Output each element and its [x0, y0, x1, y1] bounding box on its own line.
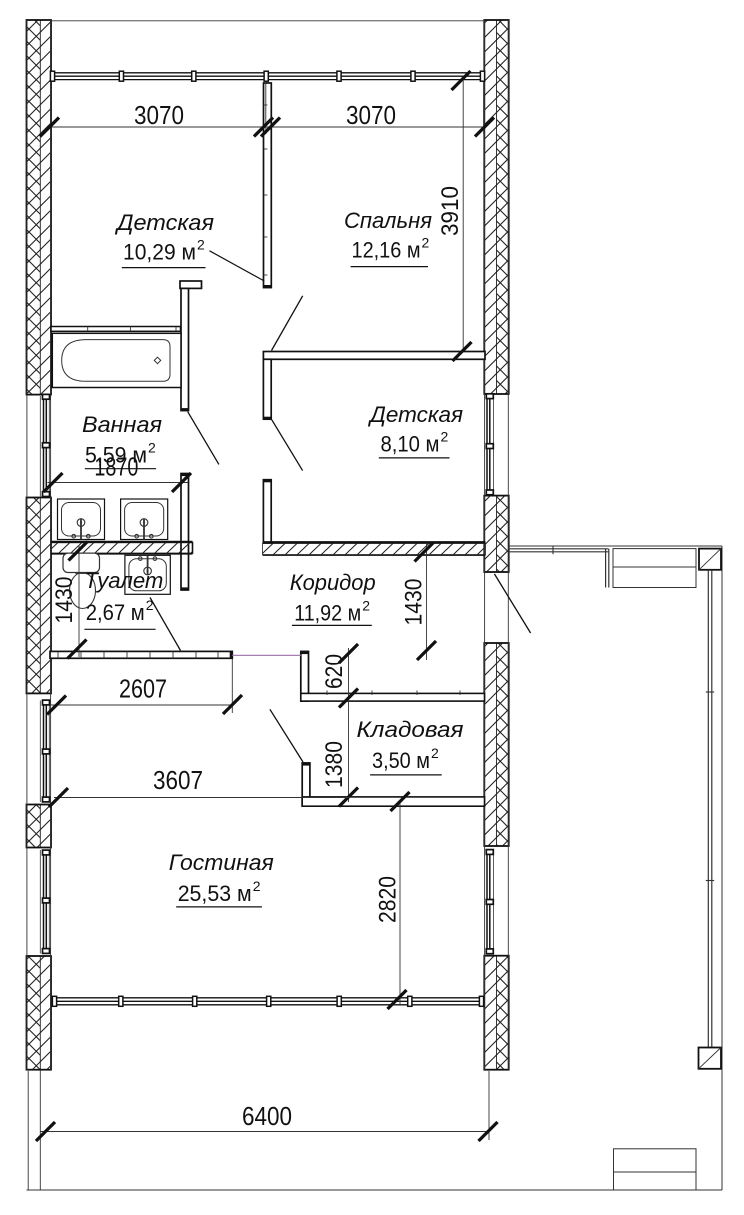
- svg-text:Ванная: Ванная: [82, 412, 162, 437]
- svg-text:1430: 1430: [51, 577, 78, 624]
- svg-text:Гостиная: Гостиная: [169, 850, 274, 875]
- svg-text:2: 2: [148, 440, 156, 456]
- svg-text:1430: 1430: [401, 579, 428, 626]
- svg-text:2: 2: [362, 598, 370, 614]
- svg-text:2: 2: [146, 597, 154, 613]
- svg-text:2607: 2607: [119, 674, 167, 704]
- svg-text:2: 2: [253, 878, 261, 894]
- svg-text:2: 2: [441, 429, 449, 445]
- svg-text:Коридор: Коридор: [290, 570, 376, 595]
- svg-text:10,29 м: 10,29 м: [123, 240, 196, 265]
- svg-text:Детская: Детская: [367, 402, 463, 427]
- svg-text:25,53 м: 25,53 м: [178, 881, 252, 906]
- svg-text:3910: 3910: [437, 186, 464, 236]
- svg-text:2: 2: [431, 745, 439, 761]
- svg-text:1380: 1380: [321, 741, 348, 788]
- svg-text:Спальня: Спальня: [344, 208, 432, 233]
- svg-text:12,16 м: 12,16 м: [352, 238, 421, 263]
- svg-text:Кладовая: Кладовая: [357, 717, 464, 742]
- svg-text:2: 2: [422, 235, 430, 251]
- svg-text:620: 620: [321, 654, 348, 689]
- svg-text:3070: 3070: [134, 100, 184, 130]
- svg-text:3070: 3070: [346, 100, 396, 130]
- svg-text:Детская: Детская: [114, 210, 214, 235]
- svg-text:11,92 м: 11,92 м: [294, 601, 361, 626]
- svg-text:3607: 3607: [153, 765, 203, 795]
- svg-text:2820: 2820: [375, 876, 402, 923]
- svg-text:6400: 6400: [242, 1101, 292, 1131]
- svg-text:2: 2: [197, 237, 205, 253]
- svg-text:Туалет: Туалет: [84, 568, 163, 593]
- svg-text:1870: 1870: [94, 452, 138, 482]
- svg-text:2,67 м: 2,67 м: [86, 600, 145, 625]
- svg-text:3,50 м: 3,50 м: [372, 748, 430, 773]
- svg-text:8,10 м: 8,10 м: [381, 432, 440, 457]
